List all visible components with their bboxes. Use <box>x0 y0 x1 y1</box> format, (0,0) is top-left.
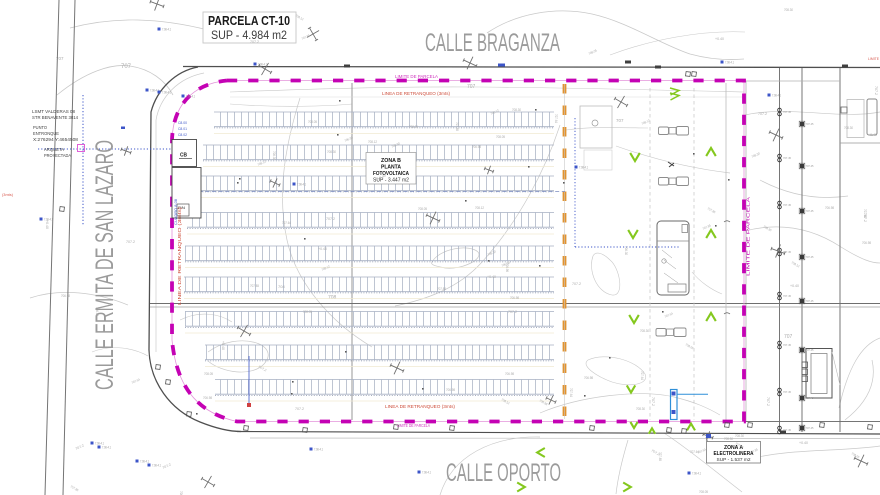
svg-text:707.2: 707.2 <box>326 217 335 221</box>
svg-text:LIMITE DE PARCELA: LIMITE DE PARCELA <box>395 74 438 79</box>
svg-text:(3mts): (3mts) <box>2 192 14 197</box>
svg-text:LIMITE: LIMITE <box>868 56 879 61</box>
svg-text:7.08-4.1: 7.08-4.1 <box>725 61 734 65</box>
svg-text:ENTRONQUE: ENTRONQUE <box>33 131 59 136</box>
svg-text:707.45: 707.45 <box>806 164 814 168</box>
svg-text:CALLE OPORTO: CALLE OPORTO <box>446 459 561 487</box>
svg-text:+0.40: +0.40 <box>487 275 496 279</box>
svg-text:707.64: 707.64 <box>554 114 558 123</box>
svg-text:707.2: 707.2 <box>250 40 259 44</box>
svg-text:+0.40: +0.40 <box>318 247 327 251</box>
svg-text:707: 707 <box>121 64 132 70</box>
svg-text:708.30: 708.30 <box>179 491 183 495</box>
svg-text:708.05: 708.05 <box>308 120 317 124</box>
svg-text:707.2: 707.2 <box>508 310 517 314</box>
svg-text:PROYECTADA: PROYECTADA <box>44 153 72 158</box>
svg-text:707.45: 707.45 <box>783 343 791 347</box>
svg-text:STR BENAVENTE 3014: STR BENAVENTE 3014 <box>32 115 78 120</box>
svg-text:7.08-4.1: 7.08-4.1 <box>422 471 431 475</box>
svg-text:708: 708 <box>328 295 337 301</box>
svg-text:707.2: 707.2 <box>874 86 878 95</box>
svg-text:707.2: 707.2 <box>651 397 655 406</box>
svg-text:708.30: 708.30 <box>95 307 99 316</box>
svg-text:7.08-4.1: 7.08-4.1 <box>162 91 171 95</box>
svg-text:708.05: 708.05 <box>496 135 505 139</box>
svg-text:707.45: 707.45 <box>806 396 814 400</box>
svg-text:707.2: 707.2 <box>572 282 581 286</box>
svg-text:707.85: 707.85 <box>437 287 446 291</box>
svg-text:706.98: 706.98 <box>825 206 834 210</box>
svg-text:708.30: 708.30 <box>640 329 649 333</box>
svg-text:708.30: 708.30 <box>844 126 853 130</box>
svg-text:SUP - 1.537 m2: SUP - 1.537 m2 <box>717 457 751 463</box>
svg-text:708.12: 708.12 <box>368 140 377 144</box>
svg-text:707: 707 <box>616 118 624 123</box>
svg-text:707.45: 707.45 <box>806 426 814 430</box>
svg-text:706.98: 706.98 <box>862 241 871 245</box>
svg-text:PLANTA: PLANTA <box>381 165 402 171</box>
svg-text:707.64: 707.64 <box>569 388 573 397</box>
svg-text:706.98: 706.98 <box>510 296 519 300</box>
svg-text:CALLE ERMITA DE SAN LAZARO: CALLE ERMITA DE SAN LAZARO <box>91 140 119 390</box>
svg-text:C8.01: C8.01 <box>178 127 187 131</box>
svg-text:+0.40: +0.40 <box>45 220 49 229</box>
svg-text:708.30: 708.30 <box>624 246 628 255</box>
svg-text:708.30: 708.30 <box>724 437 733 441</box>
svg-text:ARQUETA: ARQUETA <box>44 147 65 152</box>
svg-text:707: 707 <box>784 334 793 340</box>
svg-text:706.98: 706.98 <box>203 396 212 400</box>
svg-text:C8.02: C8.02 <box>178 133 187 137</box>
svg-text:LSMT VALDERAS 08: LSMT VALDERAS 08 <box>32 109 75 114</box>
svg-text:+0.40: +0.40 <box>790 284 799 288</box>
svg-text:707.85: 707.85 <box>455 122 459 131</box>
svg-text:708.05: 708.05 <box>418 207 427 211</box>
svg-text:708.05: 708.05 <box>303 310 312 314</box>
svg-text:7.08-4.1: 7.08-4.1 <box>186 95 195 99</box>
svg-text:7.08-4.1: 7.08-4.1 <box>102 446 111 450</box>
svg-text:707.85: 707.85 <box>250 284 259 288</box>
svg-text:707.2: 707.2 <box>126 240 135 244</box>
svg-text:708.12: 708.12 <box>475 206 484 210</box>
svg-text:PUNTO: PUNTO <box>33 125 47 130</box>
svg-text:7.08-4.1: 7.08-4.1 <box>297 183 306 187</box>
svg-text:707.2: 707.2 <box>295 407 304 411</box>
svg-text:7.08-4.1: 7.08-4.1 <box>162 28 171 32</box>
svg-text:X:276294 Y:4654508: X:276294 Y:4654508 <box>33 137 78 142</box>
svg-text:707.64: 707.64 <box>640 371 644 380</box>
svg-text:7.08-4.1: 7.08-4.1 <box>258 63 267 67</box>
svg-text:708.05: 708.05 <box>204 372 213 376</box>
svg-text:707.2: 707.2 <box>766 397 770 406</box>
svg-text:+0.40: +0.40 <box>868 133 877 137</box>
svg-text:708.05: 708.05 <box>699 490 708 494</box>
svg-text:LINEA DE RETRANQUEO (3mts): LINEA DE RETRANQUEO (3mts) <box>382 91 451 96</box>
svg-text:707.45: 707.45 <box>783 110 791 114</box>
svg-text:708.30: 708.30 <box>636 407 645 411</box>
svg-text:708.30: 708.30 <box>735 434 744 438</box>
svg-text:707.45: 707.45 <box>783 203 791 207</box>
svg-text:C8.00: C8.00 <box>178 121 187 125</box>
svg-text:707.45: 707.45 <box>806 255 814 259</box>
svg-text:707.2: 707.2 <box>863 213 867 222</box>
svg-text:LIMITE DE PARCELA: LIMITE DE PARCELA <box>746 197 751 276</box>
svg-text:706.98: 706.98 <box>446 388 455 392</box>
svg-text:707.45: 707.45 <box>806 299 814 303</box>
svg-text:CUADRO 8.08: CUADRO 8.08 <box>174 199 178 225</box>
svg-text:7.08-4.1: 7.08-4.1 <box>692 472 701 476</box>
svg-text:708.30: 708.30 <box>327 150 336 154</box>
svg-text:+0.40: +0.40 <box>799 441 808 445</box>
svg-text:707.45: 707.45 <box>783 294 791 298</box>
svg-text:7.08-4.1: 7.08-4.1 <box>579 166 588 170</box>
svg-text:ELECTROLINERA: ELECTROLINERA <box>714 451 754 457</box>
svg-text:7.08-4.1: 7.08-4.1 <box>152 464 161 468</box>
svg-text:707.45: 707.45 <box>806 348 814 352</box>
svg-text:7.08-4.1: 7.08-4.1 <box>140 460 149 464</box>
svg-text:LINEA DE RETRANQUEO (3mts): LINEA DE RETRANQUEO (3mts) <box>385 404 456 409</box>
svg-text:7.08-4.1: 7.08-4.1 <box>314 448 323 452</box>
svg-text:706.98: 706.98 <box>472 145 481 149</box>
svg-text:+0.40: +0.40 <box>715 37 724 41</box>
svg-text:707.45: 707.45 <box>806 122 814 126</box>
svg-text:706.98: 706.98 <box>505 372 514 376</box>
svg-text:707.2: 707.2 <box>758 112 767 116</box>
svg-text:LIMITE DE PARCELA: LIMITE DE PARCELA <box>397 423 430 428</box>
svg-text:707.45: 707.45 <box>783 390 791 394</box>
svg-text:706.98: 706.98 <box>61 294 70 298</box>
svg-text:CALLE BRAGANZA: CALLE BRAGANZA <box>425 29 560 57</box>
svg-text:ZONA B: ZONA B <box>381 158 401 164</box>
svg-text:PARCELA CT-10: PARCELA CT-10 <box>208 13 290 28</box>
svg-text:707.64: 707.64 <box>282 221 291 225</box>
svg-text:CB: CB <box>180 153 187 159</box>
svg-text:707.45: 707.45 <box>806 209 814 213</box>
svg-text:706.98: 706.98 <box>584 376 593 380</box>
svg-text:+0.40: +0.40 <box>221 341 225 350</box>
svg-text:708.05: 708.05 <box>409 125 418 129</box>
svg-text:707.45: 707.45 <box>783 156 791 160</box>
svg-text:7.08-4.1: 7.08-4.1 <box>772 94 781 98</box>
svg-text:708.30: 708.30 <box>512 108 521 112</box>
svg-text:708.30: 708.30 <box>272 151 276 160</box>
svg-text:707: 707 <box>467 84 476 90</box>
svg-text:708.30: 708.30 <box>784 8 793 12</box>
